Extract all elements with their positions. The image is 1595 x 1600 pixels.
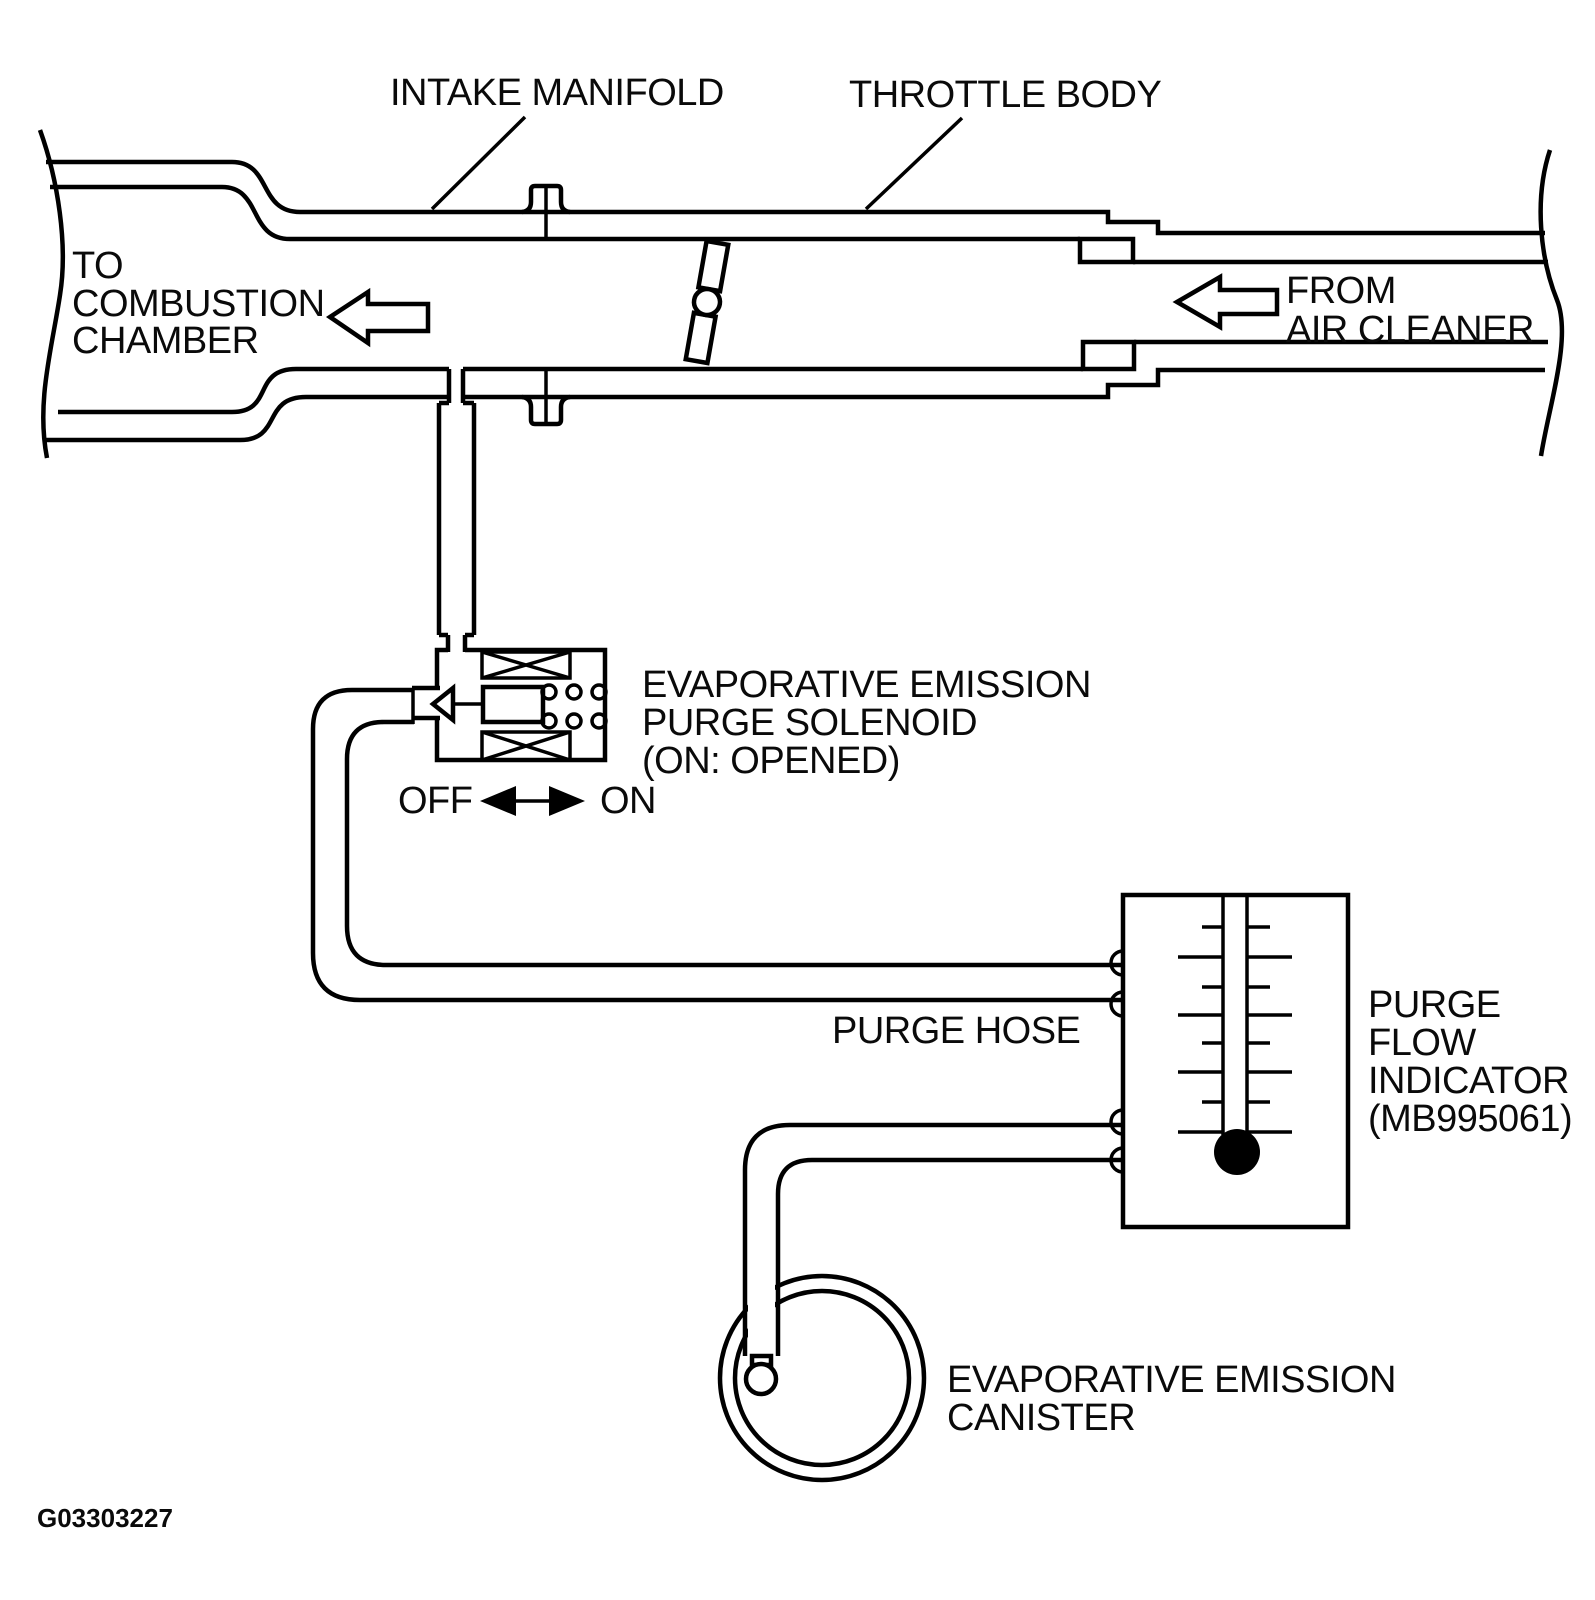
throttle-shaft-icon [692,287,722,317]
purge-solenoid-label: EVAPORATIVE EMISSION [642,664,1091,706]
indicator-housing [1123,895,1348,1227]
to-combustion-chamber-label: TO [72,245,123,287]
solenoid-on-label: ON [600,780,656,822]
canister-port-icon [746,1364,776,1394]
throttle-blade-lower [686,313,716,363]
diagram-labels: INTAKE MANIFOLD THROTTLE BODY TO COMBUST… [37,72,1572,1533]
figure-code: G03303227 [37,1503,173,1533]
to-combustion-chamber-label: CHAMBER [72,320,259,362]
throttle-valve [684,241,730,364]
purge-flow-indicator-label: PURGE [1368,984,1501,1026]
canister-hose-mask [748,1166,775,1358]
evap-canister-label: EVAPORATIVE EMISSION [947,1359,1396,1401]
solenoid-coil-top-icon [482,652,570,678]
solenoid-flow-arrow-icon [433,688,453,720]
pipe-top-outer-wall [46,162,1545,233]
purge-flow-indicator-label: FLOW [1368,1022,1476,1064]
throttle-body-label: THROTTLE BODY [849,74,1161,116]
purge-port-walls [449,369,463,403]
pipe-break-right-icon [1541,150,1562,456]
solenoid-plunger [483,687,543,722]
purge-solenoid-label: PURGE SOLENOID [642,702,977,744]
indicator-float-ball [1214,1129,1260,1175]
throttle-blade-upper [698,241,728,291]
coupling-seam-top [1080,239,1133,262]
solenoid-off-label: OFF [398,780,472,822]
purge-flow-indicator-label: (MB995061) [1368,1098,1572,1140]
pipe-break-left-icon [40,130,63,458]
purge-solenoid-label: (ON: OPENED) [642,740,900,782]
flow-arrow-right-icon [1177,277,1277,327]
pipe-bottom-inner-wall [58,369,1083,412]
solenoid-vent-ports [542,685,606,728]
solenoid-coil-bottom-icon [482,732,570,760]
throttle-body-leader [866,118,962,209]
purge-flow-indicator [1111,895,1348,1227]
to-combustion-chamber-label: COMBUSTION [72,283,325,325]
diagram-page: INTAKE MANIFOLD THROTTLE BODY TO COMBUST… [0,0,1595,1600]
evap-purge-system-diagram: INTAKE MANIFOLD THROTTLE BODY TO COMBUST… [0,0,1595,1600]
purge-solenoid [412,650,606,760]
purge-flow-indicator-label: INDICATOR [1368,1060,1569,1102]
evap-canister-label: CANISTER [947,1397,1135,1439]
flow-arrow-left-icon [330,292,428,343]
intake-manifold-leader [432,117,525,209]
intake-manifold-label: INTAKE MANIFOLD [390,72,724,114]
off-on-arrow-icon [480,786,585,816]
purge-port-pipe [439,369,474,652]
purge-pipe-walls [439,403,474,635]
coupling-seam-bottom [1083,342,1134,369]
canister-hose [745,1125,1125,1394]
purge-hose-label: PURGE HOSE [832,1010,1080,1052]
from-air-cleaner-label: FROM [1286,270,1396,312]
from-air-cleaner-label: AIR CLEANER [1286,309,1534,351]
canister-hose-inner-edge [778,1160,1125,1356]
